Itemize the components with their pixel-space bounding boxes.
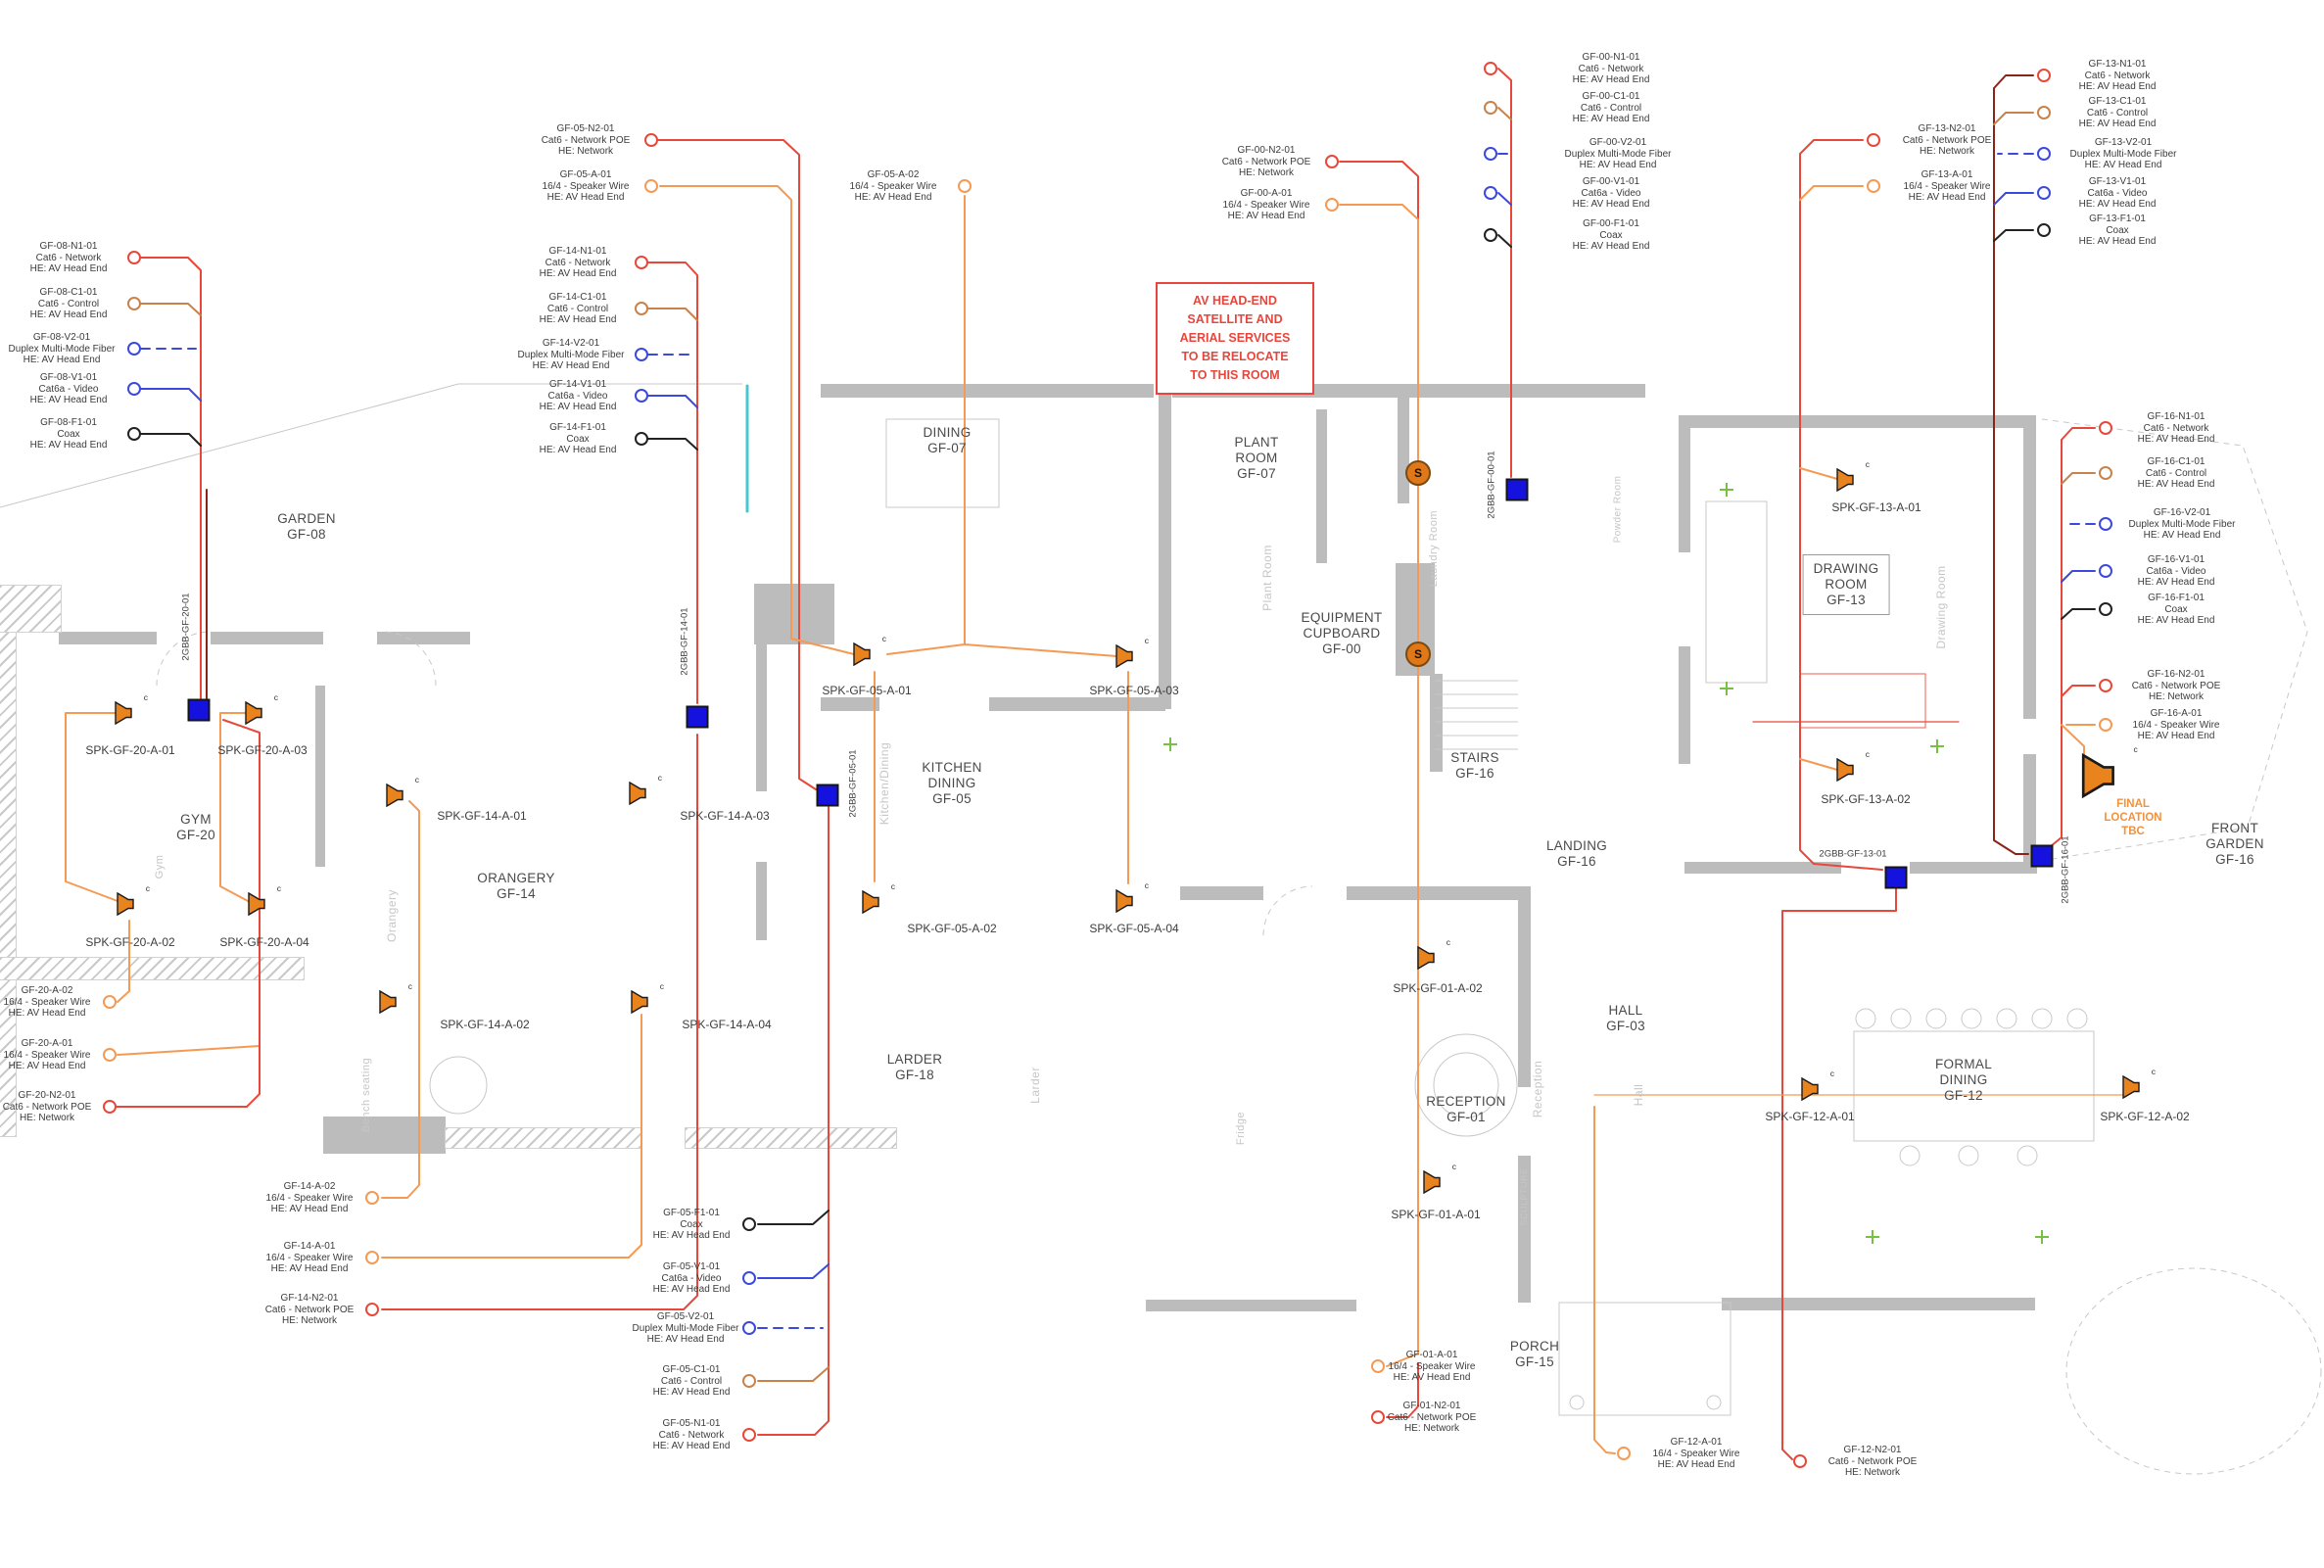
note-line: LOCATION — [2104, 811, 2161, 825]
callout-destination: HE: AV Head End — [1573, 199, 1650, 211]
callout-destination: HE: AV Head End — [543, 192, 630, 204]
callout-cable-type: 16/4 - Speaker Wire — [266, 1192, 354, 1204]
note-line: AV HEAD-END — [1160, 292, 1310, 310]
cable-run-control — [648, 309, 697, 320]
ceiling-marker-icon — [1930, 739, 1944, 753]
cable-terminal-icon-GF-00-N2-01 — [1325, 155, 1339, 168]
backbox-icon-2GBB-GF-14-01 — [687, 706, 709, 729]
cable-terminal-icon-GF-00-N1-01 — [1484, 62, 1497, 75]
cable-callout-GF-13-V1-01: GF-13-V1-01Cat6a - VideoHE: AV Head End — [2079, 176, 2157, 211]
callout-id: GF-13-A-01 — [1904, 169, 1991, 181]
cable-terminal-icon-GF-05-A-01 — [644, 179, 658, 193]
backbox-label-2GBB-GF-20-01: 2GBB-GF-20-01 — [181, 593, 192, 660]
cable-run-coax — [141, 434, 201, 446]
cable-callout-GF-05-V2-01: GF-05-V2-01Duplex Multi-Mode FiberHE: AV… — [633, 1311, 739, 1346]
callout-id: GF-20-A-02 — [4, 985, 91, 997]
room-label-line: LANDING — [1546, 838, 1607, 854]
cable-run-speaker — [118, 921, 129, 1002]
callout-destination: HE: AV Head End — [2138, 434, 2215, 446]
cable-terminal-icon-GF-05-N2-01 — [644, 133, 658, 147]
cable-callout-GF-08-F1-01: GF-08-F1-01CoaxHE: AV Head End — [30, 417, 108, 451]
callout-cable-type: Coax — [2079, 224, 2157, 236]
callout-id: GF-12-N2-01 — [1828, 1445, 1918, 1456]
room-label-line: ROOM — [1234, 451, 1278, 466]
callout-id: GF-14-V2-01 — [518, 338, 625, 350]
speaker-label-SPK-GF-05-A-02: SPK-GF-05-A-02 — [907, 922, 996, 935]
callout-id: GF-05-V2-01 — [633, 1311, 739, 1323]
callout-cable-type: Coax — [2138, 603, 2215, 615]
cable-run-speaker — [1387, 1210, 1418, 1366]
speaker-label-SPK-GF-14-A-01: SPK-GF-14-A-01 — [437, 809, 526, 823]
callout-id: GF-13-N2-01 — [1903, 123, 1992, 135]
room-label-drawing-room-gf-13: DRAWINGROOMGF-13 — [1803, 554, 1890, 615]
speaker-label-SPK-GF-01-A-01: SPK-GF-01-A-01 — [1391, 1208, 1480, 1221]
plan-outline — [2017, 1146, 2037, 1165]
callout-destination: HE: Network — [1903, 146, 1992, 158]
cable-terminal-icon-GF-16-F1-01 — [2099, 602, 2112, 616]
cable-terminal-icon-GF-14-N1-01 — [635, 256, 648, 269]
room-label-line: GF-05 — [922, 791, 981, 807]
speaker-label-SPK-GF-20-A-03: SPK-GF-20-A-03 — [217, 743, 307, 757]
room-label-plant-room-gf-07: PLANTROOMGF-07 — [1234, 435, 1278, 482]
cable-callout-GF-16-C1-01: GF-16-C1-01Cat6 - ControlHE: AV Head End — [2138, 456, 2215, 491]
note-line: SATELLITE AND — [1160, 310, 1310, 329]
cable-run-speaker — [1340, 205, 1418, 1210]
cable-terminal-icon-GF-13-N1-01 — [2037, 69, 2051, 82]
room-label-gym-gf-20: GYMGF-20 — [176, 812, 215, 843]
callout-destination: HE: AV Head End — [2133, 731, 2220, 742]
cable-run-speaker — [382, 1015, 641, 1258]
speaker-icon-SPK-GF-20-A-04: c — [248, 892, 273, 916]
callout-cable-type: Cat6 - Network — [2079, 70, 2157, 81]
callout-id: GF-14-F1-01 — [540, 422, 617, 434]
callout-id: GF-08-V2-01 — [9, 332, 116, 344]
ghost-room-label: Larder — [1028, 1067, 1042, 1104]
plan-outline — [1959, 1146, 1978, 1165]
callout-destination: HE: AV Head End — [266, 1263, 354, 1275]
cable-terminal-icon-GF-05-A-02 — [958, 179, 972, 193]
cable-terminal-icon-GF-14-V2-01 — [635, 348, 648, 361]
cable-run-coax — [648, 439, 697, 450]
plan-outline — [430, 1057, 487, 1114]
callout-destination: HE: Network — [1828, 1467, 1918, 1479]
callout-id: GF-00-C1-01 — [1573, 91, 1650, 103]
callout-destination: HE: Network — [3, 1113, 92, 1124]
cable-run-speaker — [1800, 759, 1837, 770]
callout-destination: HE: AV Head End — [1389, 1372, 1476, 1384]
callout-destination: HE: AV Head End — [4, 1008, 91, 1020]
room-label-dining-gf-07: DININGGF-07 — [923, 425, 971, 456]
cable-callout-GF-12-N2-01: GF-12-N2-01Cat6 - Network POEHE: Network — [1828, 1445, 1918, 1479]
backbox-label-2GBB-GF-00-01: 2GBB-GF-00-01 — [1487, 451, 1497, 518]
callout-cable-type: Coax — [30, 428, 108, 440]
room-label-line: CUPBOARD — [1302, 626, 1383, 641]
backbox-label-2GBB-GF-13-01: 2GBB-GF-13-01 — [1819, 849, 1886, 860]
callout-cable-type: Cat6 - Network POE — [3, 1101, 92, 1113]
cable-callout-GF-14-V2-01: GF-14-V2-01Duplex Multi-Mode FiberHE: AV… — [518, 338, 625, 372]
cable-callout-GF-16-N1-01: GF-16-N1-01Cat6 - NetworkHE: AV Head End — [2138, 411, 2215, 446]
callout-id: GF-13-N1-01 — [2079, 59, 2157, 71]
note-line: FINAL — [2104, 797, 2161, 811]
speaker-icon-SPK-GF-13-A-02: c — [1836, 758, 1862, 782]
ghost-room-label: Powder Room — [1613, 476, 1624, 544]
cable-terminal-icon-GF-12-N2-01 — [1793, 1454, 1807, 1468]
splitter-node-icon: S — [1405, 460, 1431, 486]
callout-id: GF-16-F1-01 — [2138, 593, 2215, 604]
cable-callout-GF-20-A-01: GF-20-A-0116/4 - Speaker WireHE: AV Head… — [4, 1038, 91, 1072]
room-label-line: EQUIPMENT — [1302, 610, 1383, 626]
callout-cable-type: Duplex Multi-Mode Fiber — [518, 349, 625, 360]
cable-callout-GF-00-F1-01: GF-00-F1-01CoaxHE: AV Head End — [1573, 218, 1650, 253]
cable-run-speaker — [220, 713, 250, 902]
cable-callout-GF-14-A-01: GF-14-A-0116/4 - Speaker WireHE: AV Head… — [266, 1241, 354, 1275]
cable-run-red — [1498, 69, 1511, 477]
callout-destination: HE: Network — [2132, 691, 2221, 703]
plan-outline — [2032, 1009, 2052, 1028]
callout-cable-type: Cat6 - Network POE — [1903, 134, 1992, 146]
cable-callout-GF-01-N2-01: GF-01-N2-01Cat6 - Network POEHE: Network — [1388, 1401, 1477, 1435]
room-label-line: DINING — [922, 776, 981, 791]
plan-outline — [1900, 1146, 1920, 1165]
cable-terminal-icon-GF-08-C1-01 — [127, 297, 141, 310]
cable-callout-GF-13-V2-01: GF-13-V2-01Duplex Multi-Mode FiberHE: AV… — [2070, 137, 2177, 171]
callout-id: GF-08-C1-01 — [30, 287, 108, 299]
callout-destination: HE: AV Head End — [1565, 160, 1672, 171]
callout-cable-type: 16/4 - Speaker Wire — [2133, 719, 2220, 731]
room-label-line: GF-03 — [1606, 1019, 1645, 1034]
callout-cable-type: Duplex Multi-Mode Fiber — [633, 1322, 739, 1334]
cable-terminal-icon-GF-20-A-01 — [103, 1048, 117, 1062]
callout-id: GF-08-F1-01 — [30, 417, 108, 429]
cable-terminal-icon-GF-08-V1-01 — [127, 382, 141, 396]
room-label-line: GF-01 — [1426, 1110, 1505, 1125]
cable-terminal-icon-GF-01-N2-01 — [1371, 1410, 1385, 1424]
callout-destination: HE: AV Head End — [2079, 119, 2157, 130]
callout-destination: HE: AV Head End — [2138, 615, 2215, 627]
ghost-room-label: Hall — [1632, 1084, 1645, 1107]
backbox-icon-2GBB-GF-00-01 — [1506, 479, 1529, 501]
cable-terminal-icon-GF-08-N1-01 — [127, 251, 141, 264]
callout-id: GF-05-C1-01 — [653, 1364, 731, 1376]
callout-destination: HE: AV Head End — [266, 1204, 354, 1215]
callout-destination: HE: AV Head End — [633, 1334, 739, 1346]
cable-terminal-icon-GF-16-N1-01 — [2099, 421, 2112, 435]
callout-destination: HE: AV Head End — [2138, 577, 2215, 589]
cable-callout-GF-00-N1-01: GF-00-N1-01Cat6 - NetworkHE: AV Head End — [1573, 52, 1650, 86]
cable-terminal-icon-GF-00-V2-01 — [1484, 147, 1497, 161]
cable-run-speaker — [409, 801, 419, 1138]
callout-destination: HE: AV Head End — [30, 263, 108, 275]
speaker-icon-SPK-GF-14-A-01: c — [386, 784, 411, 807]
cable-callout-GF-05-N1-01: GF-05-N1-01Cat6 - NetworkHE: AV Head End — [653, 1418, 731, 1452]
room-label-line: FORMAL — [1935, 1057, 1992, 1072]
room-label-line: DRAWING — [1814, 561, 1879, 577]
room-label-equipment-cupboard-gf-00: EQUIPMENTCUPBOARDGF-00 — [1302, 610, 1383, 657]
callout-id: GF-14-V1-01 — [540, 379, 617, 391]
ceiling-marker-icon — [1163, 737, 1177, 751]
plan-outline — [2066, 1268, 2321, 1474]
cable-callout-GF-16-A-01: GF-16-A-0116/4 - Speaker WireHE: AV Head… — [2133, 708, 2220, 742]
ghost-room-label: Orangery — [385, 889, 399, 942]
callout-destination: HE: AV Head End — [30, 309, 108, 321]
callout-id: GF-05-A-02 — [850, 169, 937, 181]
callout-cable-type: Cat6a - Video — [653, 1272, 731, 1284]
plan-outline — [1800, 674, 1925, 728]
speaker-label-SPK-GF-20-A-04: SPK-GF-20-A-04 — [219, 935, 308, 949]
speaker-icon-SPK-GF-20-A-02: c — [117, 892, 142, 916]
callout-destination: HE: AV Head End — [653, 1284, 731, 1296]
cable-terminal-icon-GF-16-V1-01 — [2099, 564, 2112, 578]
room-label-line: PORCH — [1510, 1339, 1559, 1354]
cable-run-video — [648, 396, 697, 407]
callout-destination: HE: AV Head End — [2079, 236, 2157, 248]
callout-cable-type: Cat6a - Video — [540, 390, 617, 402]
room-label-line: GF-16 — [1450, 766, 1499, 782]
room-label-line: ORANGERY — [477, 871, 554, 886]
cable-terminal-icon-GF-05-F1-01 — [742, 1217, 756, 1231]
cable-terminal-icon-GF-16-C1-01 — [2099, 466, 2112, 480]
callout-destination: HE: AV Head End — [653, 1387, 731, 1399]
ghost-room-label: Kitchen/Dining — [877, 742, 891, 825]
speaker-icon-SPK-GF-05-A-01: c — [853, 642, 878, 666]
callout-cable-type: Cat6 - Network POE — [1222, 156, 1311, 167]
plan-outline — [1570, 1396, 1584, 1409]
ceiling-marker-icon — [2035, 1230, 2049, 1244]
cable-terminal-icon-GF-08-F1-01 — [127, 427, 141, 441]
cable-terminal-icon-GF-00-V1-01 — [1484, 186, 1497, 200]
speaker-label-SPK-GF-12-A-01: SPK-GF-12-A-01 — [1765, 1110, 1854, 1123]
cable-callout-GF-05-A-01: GF-05-A-0116/4 - Speaker WireHE: AV Head… — [543, 169, 630, 204]
callout-destination: HE: AV Head End — [1904, 192, 1991, 204]
cable-callout-GF-08-V2-01: GF-08-V2-01Duplex Multi-Mode FiberHE: AV… — [9, 332, 116, 366]
backbox-icon-2GBB-GF-13-01 — [1885, 867, 1908, 889]
cable-run-coax — [2062, 609, 2095, 619]
cable-terminal-icon-GF-05-C1-01 — [742, 1374, 756, 1388]
cable-callout-GF-13-F1-01: GF-13-F1-01CoaxHE: AV Head End — [2079, 214, 2157, 248]
ghost-room-label: Laundry Room — [1428, 510, 1440, 587]
cable-terminal-icon-GF-16-N2-01 — [2099, 679, 2112, 692]
callout-id: GF-12-A-01 — [1653, 1437, 1740, 1449]
floor-plan: AV HEAD-END SATELLITE AND AERIAL SERVICE… — [0, 0, 2324, 1568]
callout-id: GF-00-V1-01 — [1573, 176, 1650, 188]
callout-id: GF-16-V2-01 — [2129, 507, 2236, 519]
cable-run-video — [758, 1264, 829, 1278]
callout-id: GF-16-N2-01 — [2132, 669, 2221, 681]
callout-cable-type: Cat6 - Network — [2138, 422, 2215, 434]
ceiling-marker-icon — [1866, 1230, 1879, 1244]
room-label-line: KITCHEN — [922, 760, 981, 776]
callout-destination: HE: AV Head End — [1573, 114, 1650, 125]
cable-callout-GF-14-F1-01: GF-14-F1-01CoaxHE: AV Head End — [540, 422, 617, 456]
ghost-room-label: Drawing Room — [1934, 565, 1948, 648]
callout-id: GF-01-N2-01 — [1388, 1401, 1477, 1412]
cable-terminal-icon-GF-14-F1-01 — [635, 432, 648, 446]
callout-destination: HE: AV Head End — [2129, 530, 2236, 542]
cable-callout-GF-13-C1-01: GF-13-C1-01Cat6 - ControlHE: AV Head End — [2079, 96, 2157, 130]
callout-id: GF-14-N1-01 — [540, 246, 617, 258]
splitter-node-icon: S — [1405, 641, 1431, 667]
cable-callout-GF-20-N2-01: GF-20-N2-01Cat6 - Network POEHE: Network — [3, 1090, 92, 1124]
cable-callout-GF-05-F1-01: GF-05-F1-01CoaxHE: AV Head End — [653, 1208, 731, 1242]
callout-cable-type: Cat6 - Network — [1573, 63, 1650, 74]
speaker-icon-SPK-GF-20-A-03: c — [245, 701, 270, 725]
callout-cable-type: Cat6a - Video — [2079, 187, 2157, 199]
room-label-line: DINING — [923, 425, 971, 441]
ceiling-marker-icon — [1720, 682, 1733, 695]
callout-cable-type: 16/4 - Speaker Wire — [850, 180, 937, 192]
speaker-label-SPK-GF-14-A-02: SPK-GF-14-A-02 — [440, 1018, 529, 1031]
callout-id: GF-00-F1-01 — [1573, 218, 1650, 230]
callout-destination: HE: AV Head End — [653, 1230, 731, 1242]
callout-destination: HE: AV Head End — [1223, 211, 1310, 222]
callout-destination: HE: AV Head End — [4, 1061, 91, 1072]
plan-outline — [1559, 1303, 1731, 1415]
cable-callout-GF-13-N2-01: GF-13-N2-01Cat6 - Network POEHE: Network — [1903, 123, 1992, 158]
room-label-garden-gf-08: GARDENGF-08 — [277, 511, 336, 543]
cable-callout-GF-14-N1-01: GF-14-N1-01Cat6 - NetworkHE: AV Head End — [540, 246, 617, 280]
callout-destination: HE: AV Head End — [9, 355, 116, 366]
note-line: TO BE RELOCATE — [1160, 348, 1310, 366]
callout-cable-type: Cat6 - Network POE — [1828, 1455, 1918, 1467]
callout-cable-type: Cat6a - Video — [2138, 565, 2215, 577]
backbox-icon-2GBB-GF-16-01 — [2031, 845, 2054, 868]
room-label-line: ROOM — [1814, 577, 1879, 593]
speaker-icon-SPK-GF-05-A-03: c — [1115, 644, 1141, 668]
note-line: TO THIS ROOM — [1160, 366, 1310, 385]
callout-id: GF-16-A-01 — [2133, 708, 2220, 720]
callout-cable-type: Cat6 - Network — [540, 257, 617, 268]
callout-destination: HE: AV Head End — [850, 192, 937, 204]
speaker-label-SPK-GF-12-A-02: SPK-GF-12-A-02 — [2100, 1110, 2189, 1123]
callout-destination: HE: AV Head End — [2079, 199, 2157, 211]
cable-run-coax — [1498, 235, 1511, 247]
callout-cable-type: 16/4 - Speaker Wire — [543, 180, 630, 192]
callout-id: GF-05-V1-01 — [653, 1261, 731, 1273]
cable-run-speaker — [66, 713, 118, 901]
callout-id: GF-08-V1-01 — [30, 372, 108, 384]
ghost-room-label: Fridge — [1235, 1112, 1247, 1145]
speaker-label-SPK-GF-14-A-03: SPK-GF-14-A-03 — [680, 809, 769, 823]
callout-id: GF-14-N2-01 — [265, 1293, 355, 1305]
callout-id: GF-16-N1-01 — [2138, 411, 2215, 423]
room-label-line: GF-12 — [1935, 1088, 1992, 1104]
callout-destination: HE: AV Head End — [540, 268, 617, 280]
final-location-tbc-note: FINAL LOCATION TBC — [2104, 797, 2161, 838]
plan-outline — [2067, 1009, 2087, 1028]
callout-id: GF-00-N2-01 — [1222, 145, 1311, 157]
callout-cable-type: Cat6 - Control — [2138, 467, 2215, 479]
note-line: AERIAL SERVICES — [1160, 329, 1310, 348]
speaker-icon-SPK-FINAL-TBC: c — [2081, 753, 2129, 798]
callout-destination: HE: AV Head End — [2070, 160, 2177, 171]
cable-layer — [0, 0, 2324, 1568]
callout-destination: HE: AV Head End — [2138, 479, 2215, 491]
callout-destination: HE: AV Head End — [2079, 81, 2157, 93]
backbox-label-2GBB-GF-16-01: 2GBB-GF-16-01 — [2061, 835, 2071, 903]
room-label-kitchen-dining-gf-05: KITCHENDININGGF-05 — [922, 760, 981, 807]
callout-cable-type: Cat6 - Control — [1573, 102, 1650, 114]
room-label-orangery-gf-14: ORANGERYGF-14 — [477, 871, 554, 902]
callout-cable-type: Cat6 - Network POE — [542, 134, 631, 146]
room-label-line: GF-13 — [1814, 593, 1879, 608]
callout-id: GF-16-C1-01 — [2138, 456, 2215, 468]
ghost-room-label: Bench seating — [360, 1058, 372, 1132]
plan-outline — [1926, 1009, 1946, 1028]
callout-destination: HE: Network — [542, 146, 631, 158]
callout-cable-type: Cat6 - Network POE — [265, 1304, 355, 1315]
cable-run-coax — [758, 1211, 829, 1224]
plan-outline — [0, 384, 742, 507]
cable-terminal-icon-GF-14-A-02 — [365, 1191, 379, 1205]
callout-id: GF-05-N1-01 — [653, 1418, 731, 1430]
room-label-line: DINING — [1935, 1072, 1992, 1088]
cable-run-red — [758, 807, 829, 1435]
room-label-line: GF-07 — [923, 441, 971, 456]
cable-run-control — [1994, 113, 2033, 124]
backbox-icon-2GBB-GF-05-01 — [817, 784, 839, 807]
room-label-porch-gf-15: PORCHGF-15 — [1510, 1339, 1559, 1370]
callout-cable-type: 16/4 - Speaker Wire — [1389, 1360, 1476, 1372]
callout-id: GF-08-N1-01 — [30, 241, 108, 253]
cable-callout-GF-14-V1-01: GF-14-V1-01Cat6a - VideoHE: AV Head End — [540, 379, 617, 413]
callout-cable-type: Duplex Multi-Mode Fiber — [2129, 518, 2236, 530]
speaker-icon-SPK-GF-14-A-04: c — [631, 990, 656, 1014]
callout-cable-type: 16/4 - Speaker Wire — [1223, 199, 1310, 211]
room-label-line: GF-00 — [1302, 641, 1383, 657]
cable-terminal-icon-GF-13-A-01 — [1867, 179, 1880, 193]
callout-id: GF-20-N2-01 — [3, 1090, 92, 1102]
cable-run-coax — [1994, 230, 2033, 241]
cable-terminal-icon-GF-20-N2-01 — [103, 1100, 117, 1114]
speaker-label-SPK-GF-05-A-03: SPK-GF-05-A-03 — [1089, 684, 1178, 697]
callout-destination: HE: AV Head End — [518, 360, 625, 372]
cable-callout-GF-00-C1-01: GF-00-C1-01Cat6 - ControlHE: AV Head End — [1573, 91, 1650, 125]
cable-terminal-icon-GF-16-V2-01 — [2099, 517, 2112, 531]
cable-callout-GF-16-N2-01: GF-16-N2-01Cat6 - Network POEHE: Network — [2132, 669, 2221, 703]
callout-id: GF-13-V1-01 — [2079, 176, 2157, 188]
callout-id: GF-13-C1-01 — [2079, 96, 2157, 108]
room-label-line: GF-18 — [887, 1068, 943, 1083]
callout-id: GF-14-A-02 — [266, 1181, 354, 1193]
cable-callout-GF-16-V1-01: GF-16-V1-01Cat6a - VideoHE: AV Head End — [2138, 554, 2215, 589]
cable-callout-GF-08-V1-01: GF-08-V1-01Cat6a - VideoHE: AV Head End — [30, 372, 108, 406]
room-label-line: HALL — [1606, 1003, 1645, 1019]
callout-id: GF-01-A-01 — [1389, 1350, 1476, 1361]
callout-cable-type: Cat6 - Network POE — [1388, 1411, 1477, 1423]
room-label-line: GF-15 — [1510, 1354, 1559, 1370]
cable-callout-GF-08-C1-01: GF-08-C1-01Cat6 - ControlHE: AV Head End — [30, 287, 108, 321]
cable-callout-GF-01-A-01: GF-01-A-0116/4 - Speaker WireHE: AV Head… — [1389, 1350, 1476, 1384]
backbox-icon-2GBB-GF-20-01 — [188, 699, 211, 722]
callout-destination: HE: Network — [1222, 167, 1311, 179]
plan-outline — [1856, 1009, 1875, 1028]
ghost-room-label: SCULPTURE — [1519, 1167, 1529, 1225]
cable-callout-GF-16-V2-01: GF-16-V2-01Duplex Multi-Mode FiberHE: AV… — [2129, 507, 2236, 542]
cable-callout-GF-13-N1-01: GF-13-N1-01Cat6 - NetworkHE: AV Head End — [2079, 59, 2157, 93]
room-label-line: GF-08 — [277, 527, 336, 543]
callout-id: GF-00-N1-01 — [1573, 52, 1650, 64]
room-label-landing-gf-16: LANDINGGF-16 — [1546, 838, 1607, 870]
plan-outline — [382, 632, 436, 686]
cable-terminal-icon-GF-14-V1-01 — [635, 389, 648, 403]
callout-cable-type: Cat6 - Control — [2079, 107, 2157, 119]
cable-run-speaker — [1800, 186, 1863, 200]
room-label-line: GF-16 — [2205, 852, 2264, 868]
cable-terminal-icon-GF-08-V2-01 — [127, 342, 141, 356]
callout-cable-type: Cat6 - Control — [30, 298, 108, 309]
callout-destination: HE: AV Head End — [540, 402, 617, 413]
speaker-label-SPK-GF-20-A-01: SPK-GF-20-A-01 — [85, 743, 174, 757]
